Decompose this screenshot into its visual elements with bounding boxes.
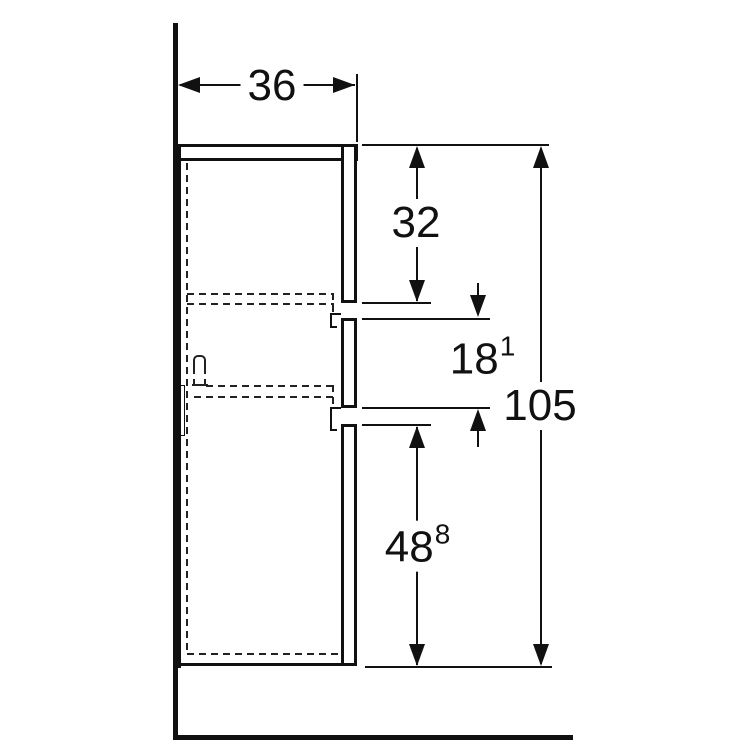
upper-shelf-edge-1 <box>187 293 334 295</box>
cabinet-back-line <box>178 144 181 668</box>
ext-line-upper-door-bottom <box>362 302 431 304</box>
dim-48-arrow-up <box>409 426 425 448</box>
dim-18-label: 181 <box>443 333 522 384</box>
dim-32-arrow-up <box>409 146 425 168</box>
dim-32-label: 32 <box>385 199 448 247</box>
ext-line-cabinet-top <box>362 144 549 146</box>
siphon-cutout-right <box>204 367 206 384</box>
middle-shelf-edge-2 <box>194 396 334 398</box>
dim-18-arrow-down <box>470 295 486 317</box>
dim-48-label: 488 <box>378 521 457 572</box>
lower-drawer-front <box>341 424 357 666</box>
upper-gap-carcass-edge-bottom <box>330 326 337 328</box>
upper-shelf-edge-2 <box>187 303 334 305</box>
ext-line-middle-front-top <box>362 318 490 320</box>
dim-18-bottom-tail <box>477 430 479 447</box>
cabinet-bottom-line <box>178 663 345 666</box>
lower-gap-carcass-edge-bottom <box>330 429 337 431</box>
siphon-cutout-top <box>193 355 206 367</box>
hidden-bottom-edge <box>187 653 338 655</box>
floor-line <box>173 735 573 740</box>
dim-depth-arrow-left <box>178 77 200 93</box>
cabinet-top-panel <box>178 144 358 161</box>
dim-32-arrow-down <box>409 280 425 302</box>
siphon-cutout-base <box>192 384 208 386</box>
ext-line-cabinet-bottom <box>365 666 552 668</box>
dim-105-arrow-down <box>533 644 549 666</box>
lower-gap-carcass-edge-side <box>330 407 332 431</box>
lower-gap-hidden-edge <box>332 385 334 409</box>
technical-drawing-canvas: 36 32 181 488 105 <box>0 0 750 750</box>
dim-depth-extension-line <box>356 74 358 142</box>
dim-18-arrow-up <box>470 409 486 431</box>
dim-depth-label: 36 <box>241 62 304 110</box>
siphon-cutout-left <box>193 367 195 384</box>
dim-105-label: 105 <box>496 382 583 430</box>
middle-shelf-edge-1 <box>206 385 334 387</box>
upper-gap-hidden-edge <box>332 293 334 315</box>
dim-105-arrow-up <box>533 146 549 168</box>
dim-depth-arrow-right <box>333 77 355 93</box>
hidden-back-edge <box>186 163 188 655</box>
upper-door-front <box>341 144 357 303</box>
middle-drawer-front <box>341 318 357 408</box>
dim-48-arrow-down <box>409 644 425 666</box>
